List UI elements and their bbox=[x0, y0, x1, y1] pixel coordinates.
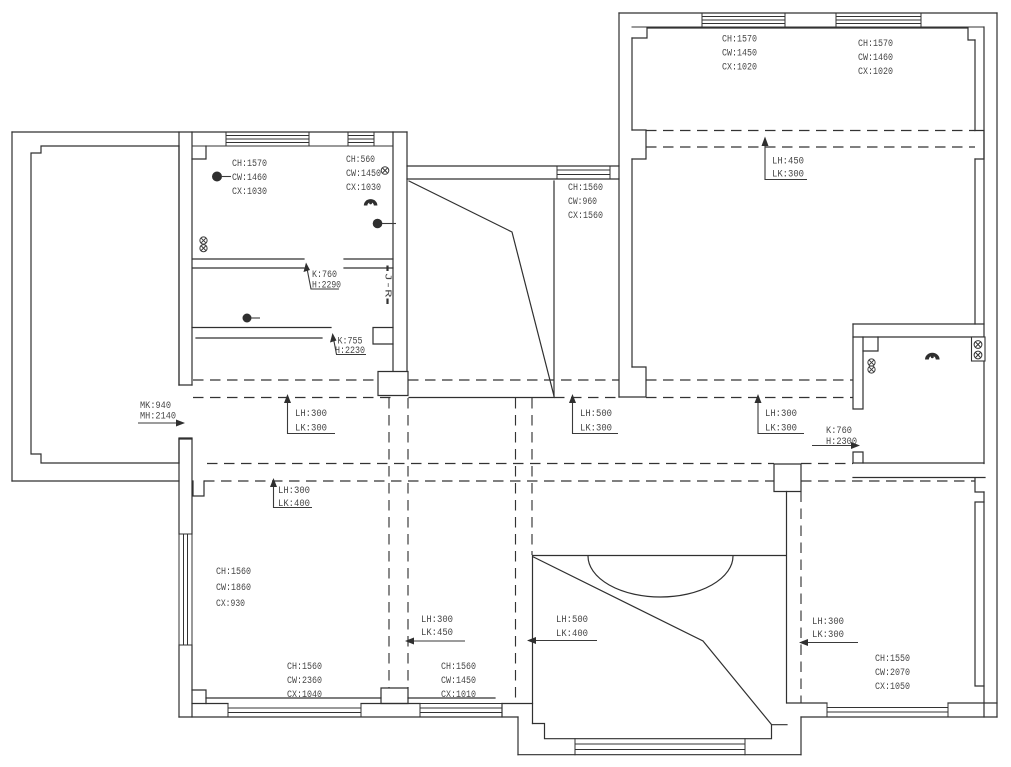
svg-text:CX:1560: CX:1560 bbox=[568, 210, 603, 222]
svg-text:CH:1560: CH:1560 bbox=[441, 661, 476, 673]
svg-text:LH:300: LH:300 bbox=[295, 408, 327, 420]
svg-text:LH:300: LH:300 bbox=[278, 485, 310, 497]
svg-text:CX:1030: CX:1030 bbox=[232, 186, 267, 198]
svg-text:CX:1020: CX:1020 bbox=[722, 62, 757, 74]
svg-text:CX:1010: CX:1010 bbox=[441, 689, 476, 701]
svg-text:CW:1450: CW:1450 bbox=[346, 168, 381, 180]
svg-text:CH:1560: CH:1560 bbox=[287, 661, 322, 673]
svg-text:CX:1020: CX:1020 bbox=[858, 66, 893, 78]
svg-text:LK:300: LK:300 bbox=[295, 423, 327, 435]
svg-text:CW:2070: CW:2070 bbox=[875, 667, 910, 679]
svg-text:CW:1450: CW:1450 bbox=[722, 48, 757, 60]
svg-text:LK:300: LK:300 bbox=[765, 423, 797, 435]
svg-text:LK:450: LK:450 bbox=[421, 627, 453, 639]
svg-text:LH:300: LH:300 bbox=[765, 408, 797, 420]
svg-text:H:2300: H:2300 bbox=[826, 436, 857, 448]
svg-text:H:2230: H:2230 bbox=[335, 345, 365, 357]
svg-text:LK:400: LK:400 bbox=[556, 628, 588, 640]
svg-text:CX:1030: CX:1030 bbox=[346, 182, 381, 194]
svg-text:LK:300: LK:300 bbox=[812, 629, 844, 641]
svg-text:CH:1570: CH:1570 bbox=[232, 158, 267, 170]
svg-text:CW:1450: CW:1450 bbox=[441, 675, 476, 687]
svg-text:LK:300: LK:300 bbox=[772, 169, 804, 181]
svg-text:CH:1550: CH:1550 bbox=[875, 653, 910, 665]
svg-text:CH:1560: CH:1560 bbox=[568, 182, 603, 194]
svg-text:LH:450: LH:450 bbox=[772, 156, 804, 168]
svg-text:CW:1460: CW:1460 bbox=[858, 52, 893, 64]
svg-text:CH:1560: CH:1560 bbox=[216, 566, 251, 578]
svg-text:LH:300: LH:300 bbox=[421, 614, 453, 626]
svg-text:CX:1050: CX:1050 bbox=[875, 681, 910, 693]
svg-text:CW:1460: CW:1460 bbox=[232, 172, 267, 184]
svg-text:CW:2360: CW:2360 bbox=[287, 675, 322, 687]
svg-text:LK:400: LK:400 bbox=[278, 498, 310, 510]
svg-text:CH:1570: CH:1570 bbox=[722, 34, 757, 46]
svg-text:LH:500: LH:500 bbox=[556, 614, 588, 626]
svg-text:CH:560: CH:560 bbox=[346, 154, 375, 166]
svg-text:CW:960: CW:960 bbox=[568, 196, 597, 208]
svg-text:CX:1040: CX:1040 bbox=[287, 689, 322, 701]
svg-text:LH:500: LH:500 bbox=[580, 408, 612, 420]
svg-text:J-R: J-R bbox=[383, 273, 394, 298]
svg-text:CX:930: CX:930 bbox=[216, 598, 245, 610]
svg-text:MH:2140: MH:2140 bbox=[140, 411, 176, 423]
svg-text:LH:300: LH:300 bbox=[812, 616, 844, 628]
svg-text:H:2290: H:2290 bbox=[312, 280, 341, 292]
svg-text:CH:1570: CH:1570 bbox=[858, 38, 893, 50]
svg-text:CW:1860: CW:1860 bbox=[216, 582, 251, 594]
svg-text:LK:300: LK:300 bbox=[580, 423, 612, 435]
